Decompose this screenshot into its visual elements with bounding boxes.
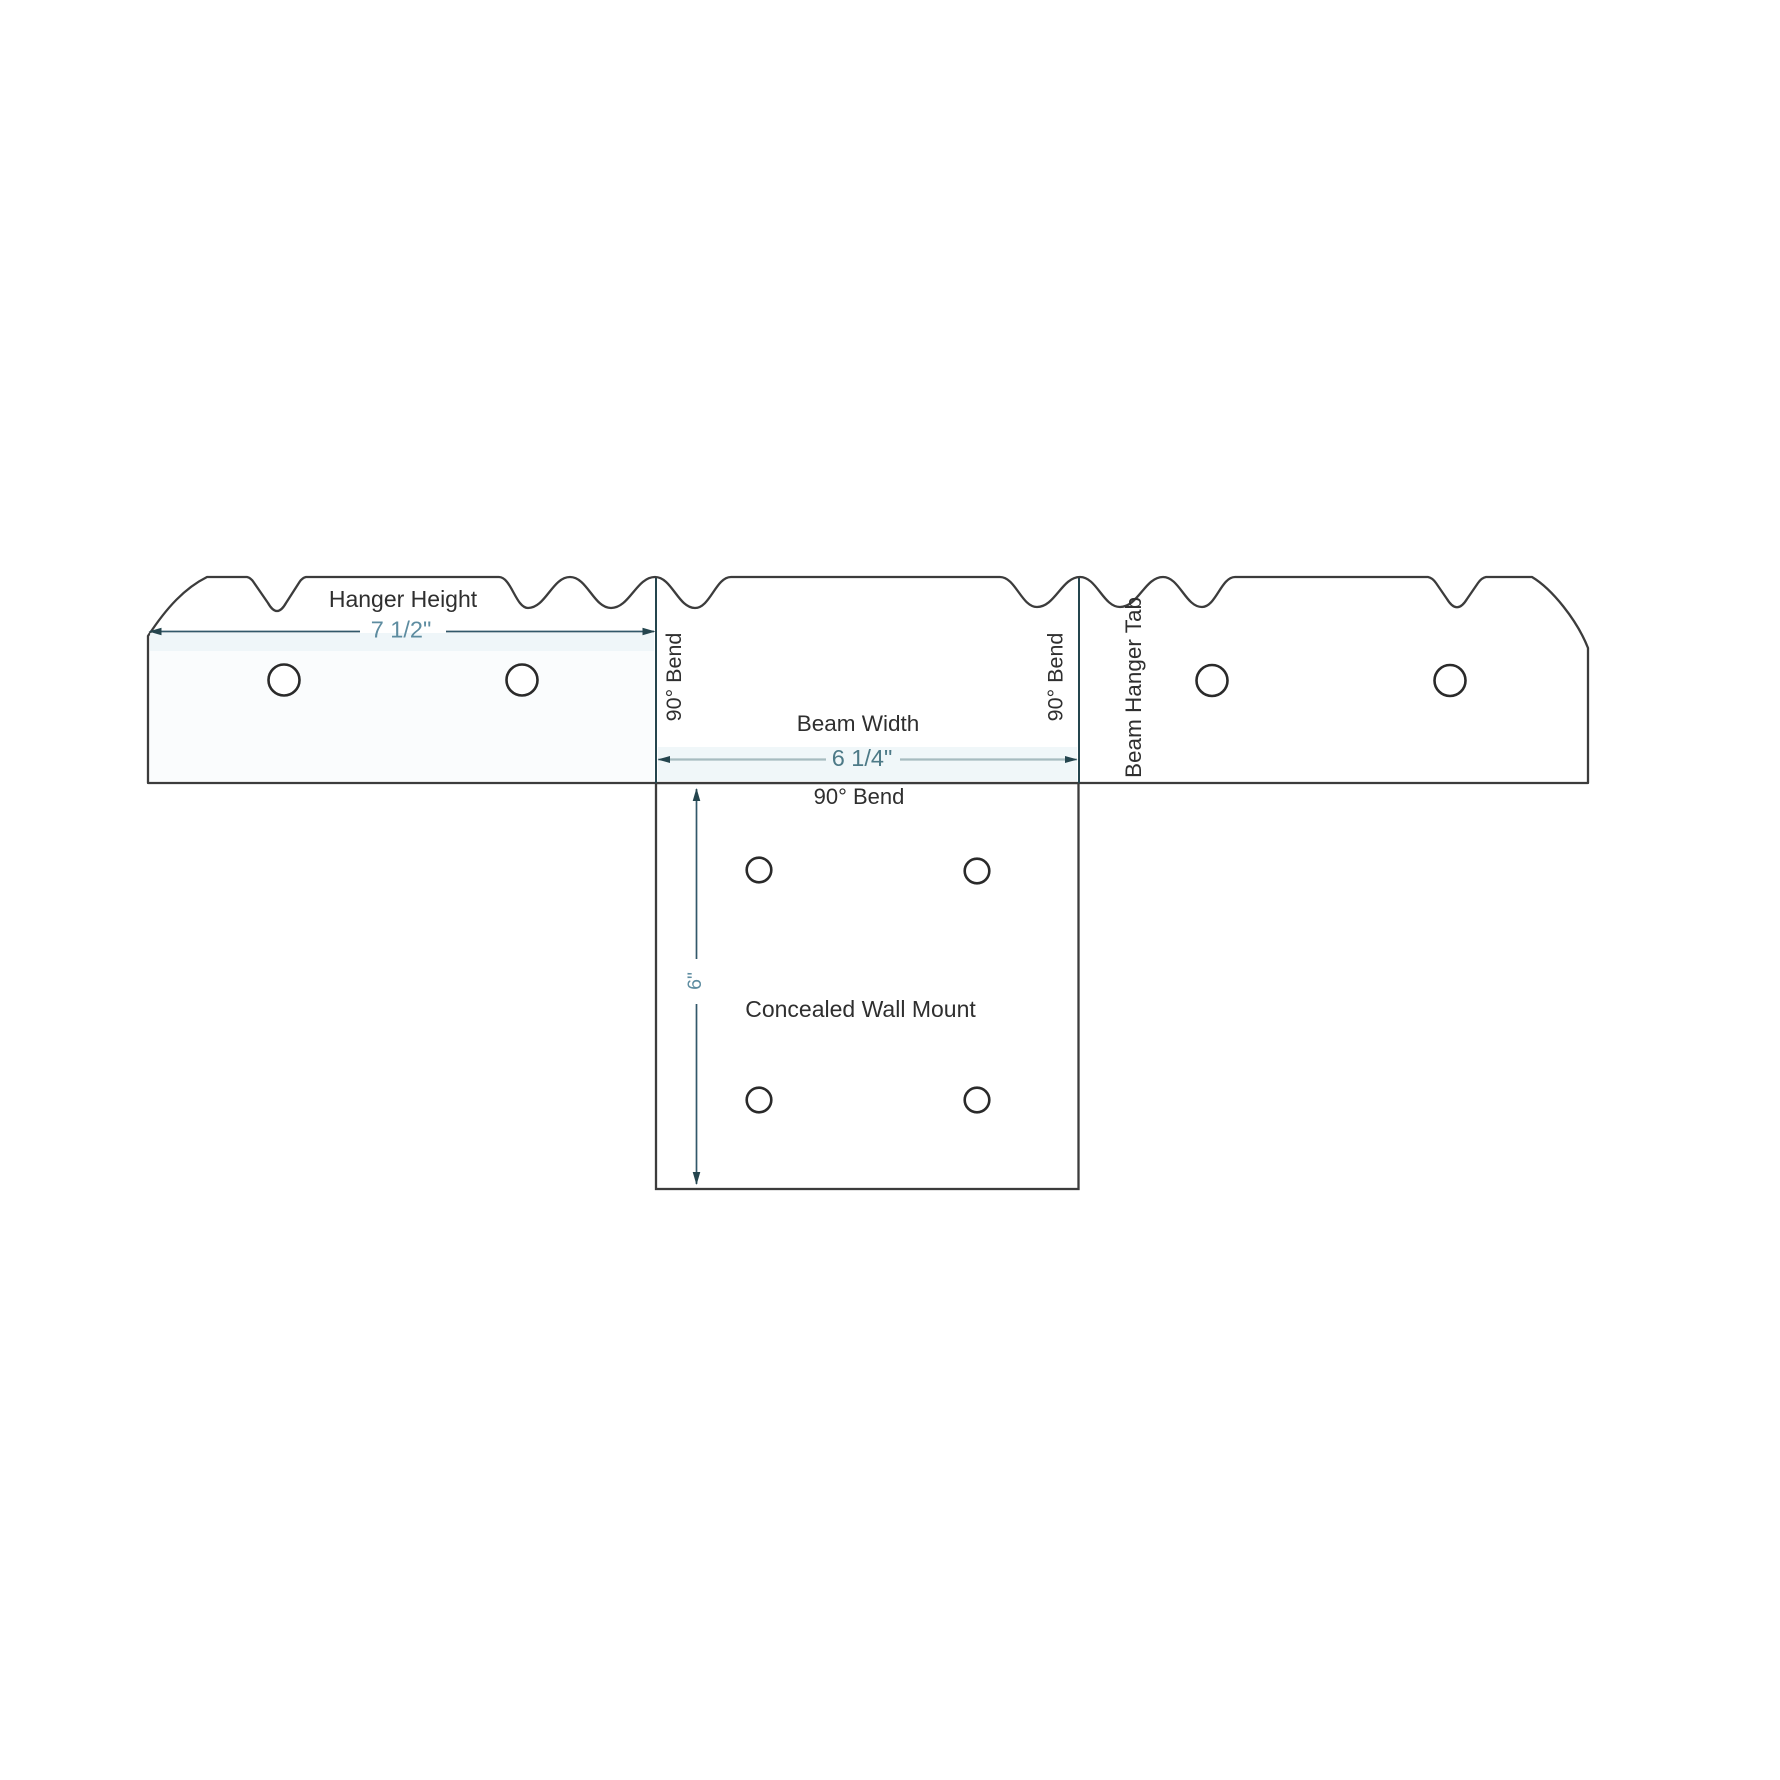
svg-text:90° Bend: 90° Bend [814, 784, 905, 809]
svg-text:Concealed Wall Mount: Concealed Wall Mount [745, 996, 976, 1022]
svg-text:6": 6" [684, 972, 706, 990]
svg-text:7 1/2": 7 1/2" [371, 617, 432, 643]
svg-text:6 1/4": 6 1/4" [832, 745, 893, 771]
svg-text:90° Bend: 90° Bend [1044, 633, 1068, 722]
svg-text:Hanger Height: Hanger Height [329, 586, 478, 612]
svg-text:Beam Width: Beam Width [797, 711, 920, 736]
svg-text:90° Bend: 90° Bend [662, 633, 686, 722]
svg-text:Beam Hanger Tab: Beam Hanger Tab [1121, 597, 1146, 778]
